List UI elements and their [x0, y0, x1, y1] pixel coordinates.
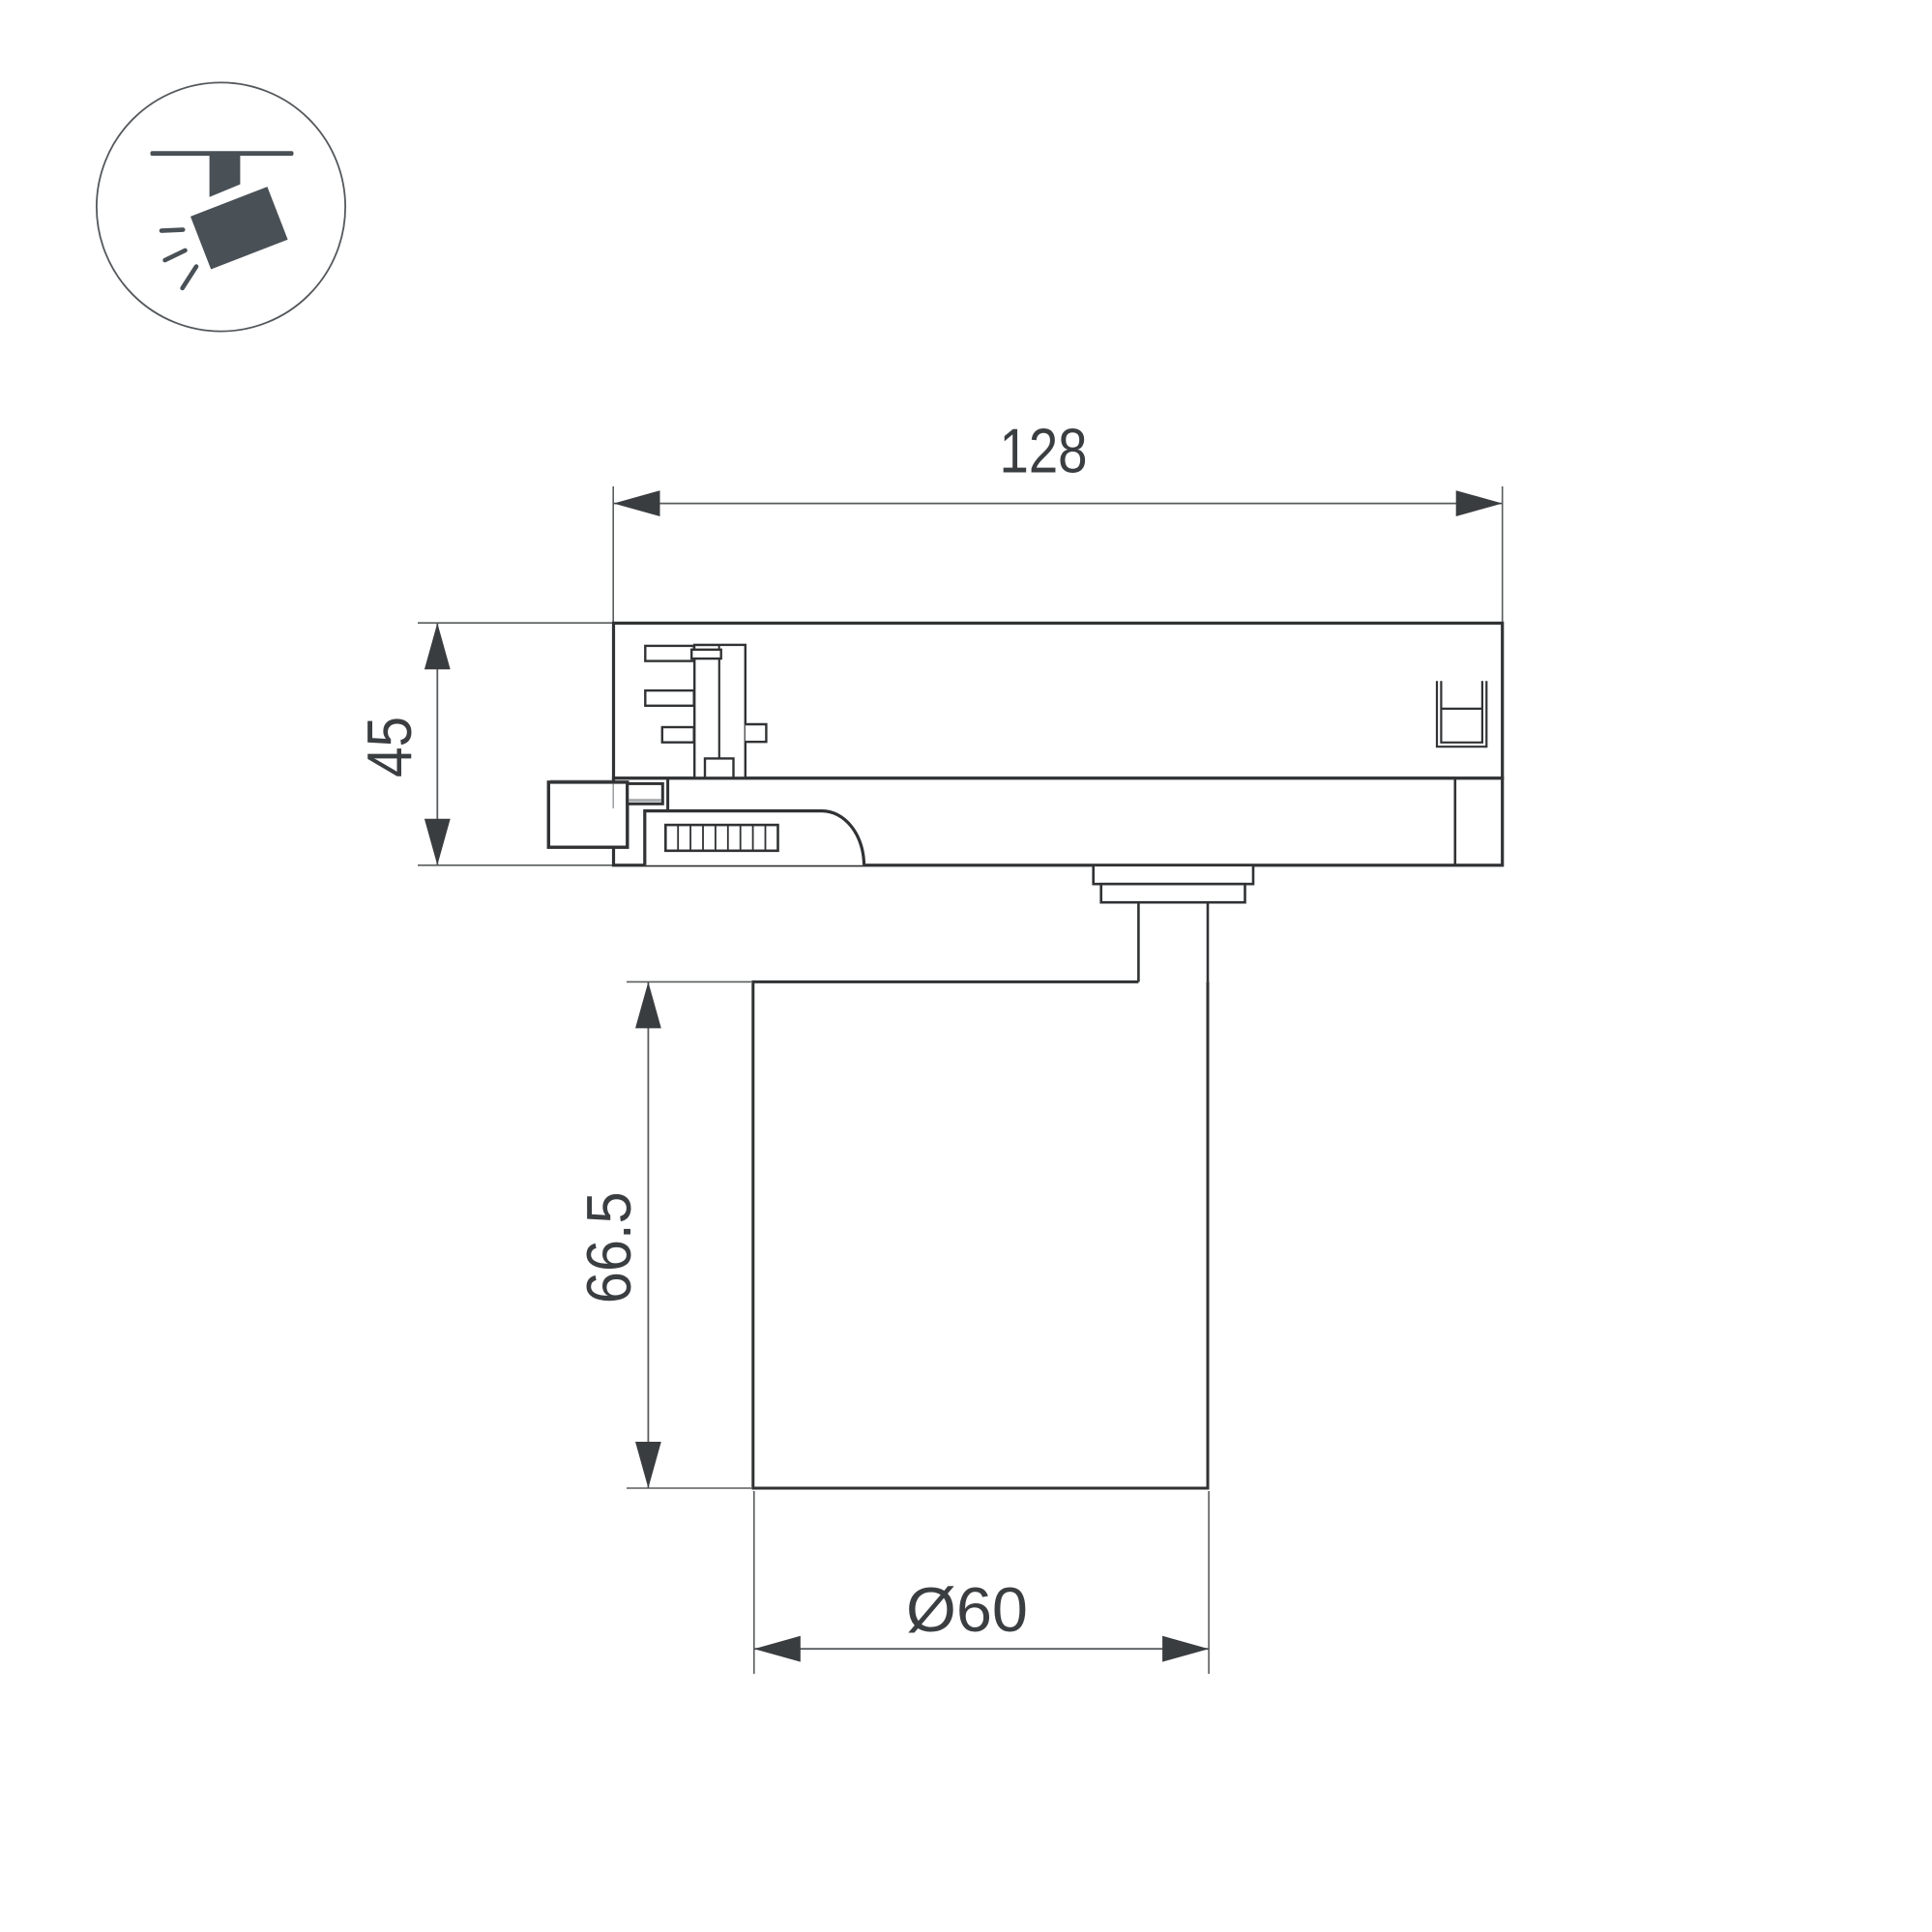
- svg-text:66.5: 66.5: [574, 1191, 644, 1303]
- svg-text:Ø60: Ø60: [906, 1575, 1028, 1645]
- svg-text:128: 128: [1000, 417, 1088, 486]
- svg-text:45: 45: [355, 717, 424, 777]
